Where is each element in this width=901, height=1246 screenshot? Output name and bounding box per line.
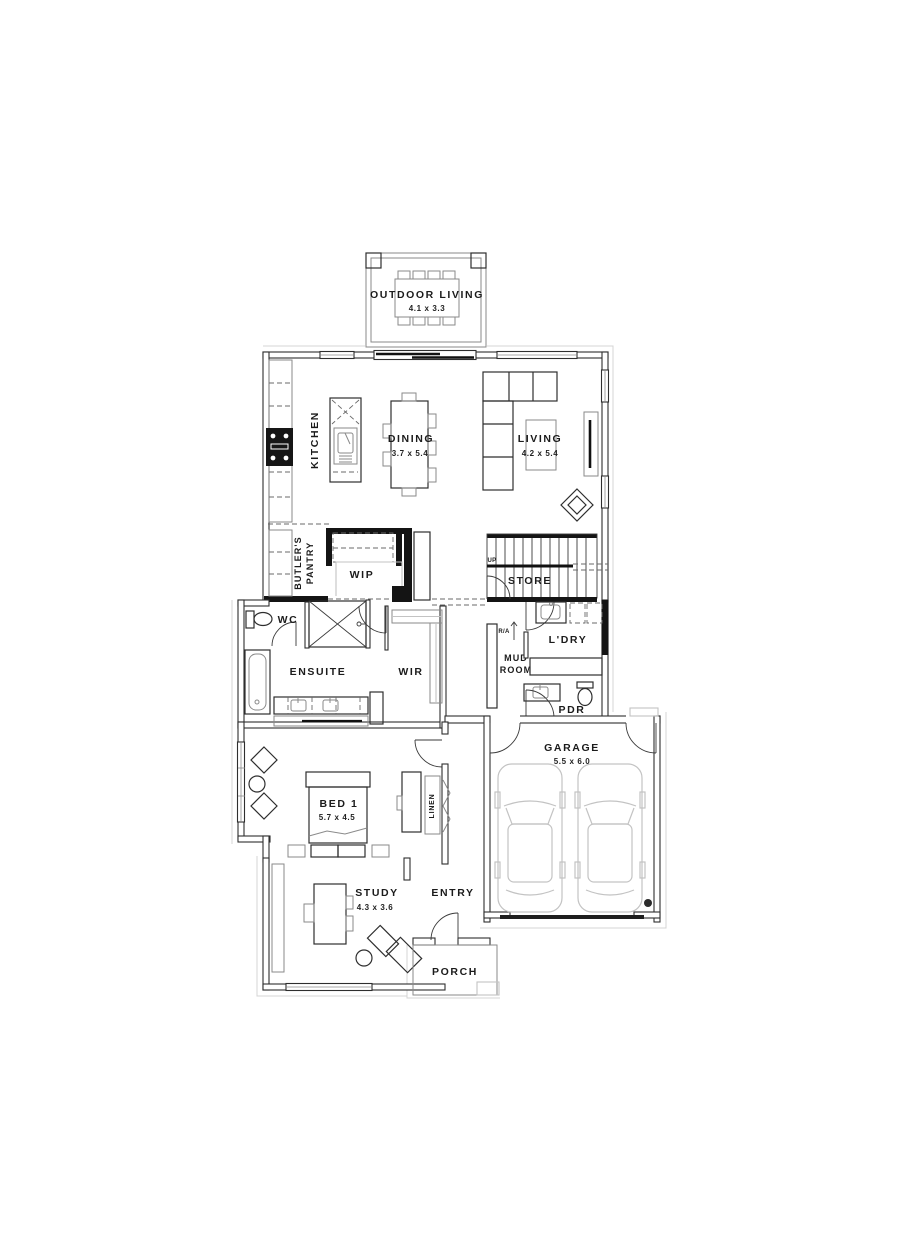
entry-area: ENTRY [413,887,490,945]
post-icon [366,253,381,268]
door-icon [415,740,442,767]
window-icon [286,984,372,991]
sofa-icon [483,372,557,490]
lounge-chair-icon [356,925,422,972]
study-dims: 4.3 x 3.6 [357,903,394,912]
pdr-label: PDR [559,704,586,716]
outdoor-living-dims: 4.1 x 3.3 [409,304,446,313]
dining-label: DINING [388,433,434,445]
washer-space-icon [570,603,585,623]
garage-label: GARAGE [544,742,600,754]
column-dot-icon [644,899,652,907]
door-icon [359,606,386,633]
kitchen-label: KITCHEN [309,411,321,469]
door-icon [626,723,656,753]
sitting-chairs-icon [249,747,277,819]
dresser-icon [397,772,421,832]
bed1-area: BED 1 5.7 x 4.5 LINEN [238,722,451,864]
garage-area: GARAGE 5.5 x 6.0 [445,708,660,922]
armchair-icon [561,489,593,521]
sink-icon [334,428,357,464]
dining-area: DINING 3.7 x 5.4 [383,393,436,496]
window-icon [497,352,577,359]
kitchen-area: KITCHEN [266,360,361,524]
porch-label: PORCH [432,966,478,978]
stairs-up-label: UP [488,558,497,564]
cooktop-icon [266,428,293,466]
bathtub-icon [245,650,270,714]
vanity-icon [274,697,368,714]
car-icon [575,764,645,912]
wir-area: WIR [392,610,442,703]
desk-chair-icon [304,904,314,922]
door-icon [526,690,554,718]
fridge-space-icon [333,533,393,562]
dining-dims: 3.7 x 5.4 [392,449,429,458]
mudroom-bench-icon [487,624,497,708]
pdr-area: PDR [524,682,593,718]
garage-dims: 5.5 x 6.0 [554,757,591,766]
outdoor-living-area: OUTDOOR LIVING 4.1 x 3.3 [366,253,486,347]
window-icon [238,742,246,822]
pdr-vanity-icon [524,684,560,701]
mud-room-label-line2: ROOM [500,665,532,675]
living-label: LIVING [518,433,563,445]
bed1-label: BED 1 [320,798,359,810]
floor-plan-drawing: OUTDOOR LIVING 4.1 x 3.3 [0,0,901,1246]
door-icon [487,576,510,599]
sliding-door-icon [374,351,476,360]
wc-area: WC [246,611,298,646]
cupboard-icon [414,532,430,600]
study-area: STUDY 4.3 x 3.6 [263,858,445,991]
butlers-pantry-label-line2: PANTRY [305,542,315,585]
post-icon [471,253,486,268]
window-icon [320,352,354,359]
living-dims: 4.2 x 5.4 [522,449,559,458]
door-icon [526,602,554,630]
toilet-icon [577,682,593,706]
study-label: STUDY [355,887,399,899]
wardrobe-shelves-icon [392,610,442,703]
entry-label: ENTRY [431,887,474,899]
window-icon [602,476,609,508]
butlers-pantry-label-line1: BUTLER'S [293,536,303,589]
store-label: STORE [508,575,552,587]
bench-icon [530,658,602,675]
coffee-table-icon [526,420,556,470]
wip-label: WIP [350,569,375,581]
window-icon [602,370,609,402]
garage-door-icon [500,915,644,919]
ensuite-label: ENSUITE [290,666,347,678]
floor-plan-page: OUTDOOR LIVING 4.1 x 3.3 [0,0,901,1246]
living-area: LIVING 4.2 x 5.4 [483,372,598,521]
bedside-table-icon [288,845,305,857]
wc-label: WC [278,614,299,626]
laundry-sink-icon [536,602,566,623]
dryer-space-icon [587,603,602,623]
wir-label: WIR [398,666,423,678]
stairs-area: UP STORE [487,534,608,602]
bulkhead-dashes [432,599,486,605]
linen-label: LINEN [429,794,436,819]
desk-icon [304,884,353,944]
door-icon [490,723,520,753]
car-icon [495,764,565,912]
bed1-dims: 5.7 x 4.5 [319,813,356,822]
step-icon [477,982,499,995]
study-cabinet-icon [272,864,284,972]
return-air-icon [511,622,517,640]
step-icon [630,708,658,716]
ensuite-area: ENSUITE [245,601,386,726]
laundry-label: L'DRY [549,634,588,646]
tv-unit-icon [584,412,598,476]
island-bench-icon [330,398,361,482]
laundry-area: L'DRY [524,602,602,675]
toilet-icon [246,611,272,628]
return-air-label: R/A [498,629,510,635]
butlers-pantry-wip-area: BUTLER'S PANTRY WIP [264,528,430,602]
outdoor-living-label: OUTDOOR LIVING [370,289,484,301]
shower-icon [309,601,366,647]
front-door-icon [431,913,458,940]
pantry-bench-icon [269,530,292,596]
cupboard-icon [370,692,383,724]
bedside-table-icon [372,845,389,857]
